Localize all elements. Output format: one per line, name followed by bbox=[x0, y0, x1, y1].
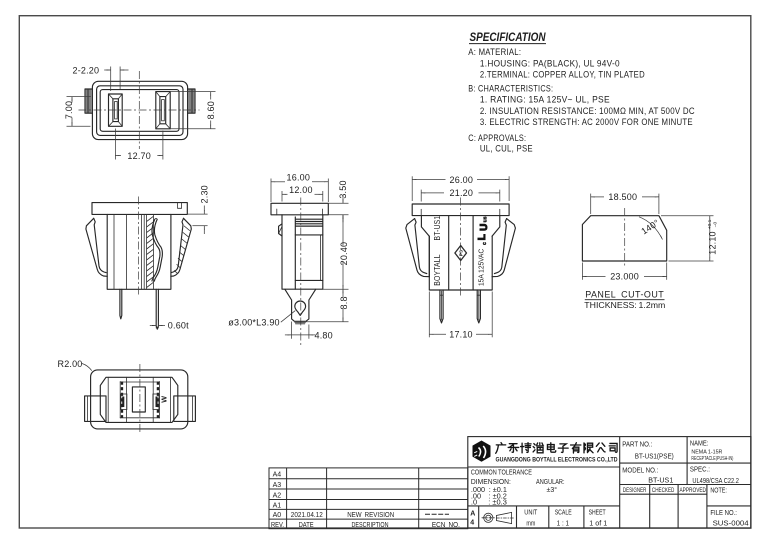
svg-text:UL498/CSA C22.2: UL498/CSA C22.2 bbox=[692, 478, 739, 485]
svg-text:+0.1: +0.1 bbox=[707, 219, 713, 229]
svg-text:DIMENSION:: DIMENSION: bbox=[471, 479, 511, 486]
svg-text:APPROVED: APPROVED bbox=[680, 487, 707, 494]
svg-text:C: APPROVALS:: C: APPROVALS: bbox=[468, 133, 526, 143]
svg-text:1 : 1: 1 : 1 bbox=[557, 520, 570, 527]
svg-text:BOYTALL: BOYTALL bbox=[433, 254, 442, 286]
svg-text:BT-US1: BT-US1 bbox=[433, 215, 442, 240]
svg-text:20.40: 20.40 bbox=[339, 242, 349, 266]
svg-text:mm: mm bbox=[526, 520, 535, 527]
svg-text:DESCRIPTION: DESCRIPTION bbox=[352, 522, 389, 529]
svg-text:A1: A1 bbox=[273, 502, 282, 509]
svg-text:12.70: 12.70 bbox=[127, 151, 151, 161]
svg-text:CHECKED: CHECKED bbox=[652, 487, 675, 494]
svg-text:A4: A4 bbox=[273, 472, 282, 479]
svg-text:PANEL CUT-OUT: PANEL CUT-OUT bbox=[585, 289, 664, 300]
svg-text:8.60: 8.60 bbox=[206, 101, 216, 119]
svg-text:PS: PS bbox=[459, 250, 464, 256]
svg-text:17.10: 17.10 bbox=[449, 330, 473, 340]
svg-text:4.80: 4.80 bbox=[315, 331, 333, 341]
svg-text:COMMON TOLERANCE: COMMON TOLERANCE bbox=[471, 469, 532, 476]
svg-text:DESIGNER: DESIGNER bbox=[623, 487, 647, 494]
svg-text:PART NO.:: PART NO.: bbox=[622, 442, 652, 449]
svg-text:2.30: 2.30 bbox=[200, 185, 210, 203]
svg-text:18.500: 18.500 bbox=[608, 192, 637, 202]
svg-text:BT-US1(PSE): BT-US1(PSE) bbox=[635, 452, 674, 461]
svg-text:A3: A3 bbox=[273, 482, 282, 489]
svg-text:2-2.20: 2-2.20 bbox=[73, 65, 100, 75]
svg-text:±3°: ±3° bbox=[547, 486, 558, 494]
svg-text:U: U bbox=[479, 224, 490, 231]
svg-text:4: 4 bbox=[470, 520, 474, 527]
svg-text:FILE NO.:: FILE NO.: bbox=[710, 510, 737, 517]
svg-text:2021.04.12: 2021.04.12 bbox=[291, 512, 323, 519]
svg-text:SUS-0004: SUS-0004 bbox=[713, 519, 749, 528]
svg-text:.0 : ±0.3: .0 : ±0.3 bbox=[471, 500, 507, 507]
svg-text:W: W bbox=[160, 396, 169, 403]
svg-text:12.10: 12.10 bbox=[708, 231, 718, 255]
svg-text:ECN NO.: ECN NO. bbox=[432, 522, 460, 529]
svg-text:3. ELECTRIC STRENGTH: AC 2000V: 3. ELECTRIC STRENGTH: AC 2000V FOR ONE M… bbox=[480, 117, 693, 127]
svg-text:NOTE:: NOTE: bbox=[710, 488, 727, 495]
svg-text:16.00: 16.00 bbox=[287, 173, 311, 183]
svg-text:A2: A2 bbox=[273, 493, 282, 500]
svg-text:GUANGDONG BOYTALL ELECTRONICS: GUANGDONG BOYTALL ELECTRONICS CO.,LTD bbox=[496, 457, 618, 464]
svg-text:A: MATERIAL:: A: MATERIAL: bbox=[468, 47, 521, 57]
svg-text:23.000: 23.000 bbox=[610, 272, 639, 282]
svg-text:7.00: 7.00 bbox=[64, 101, 74, 119]
svg-text:2. INSULATION RESISTANCE: 100M: 2. INSULATION RESISTANCE: 100MΩ MIN, AT … bbox=[480, 106, 695, 116]
svg-text:21.20: 21.20 bbox=[450, 188, 474, 198]
svg-text:THICKNESS: 1.2mm: THICKNESS: 1.2mm bbox=[584, 300, 665, 310]
svg-text:NEMA 1-15R: NEMA 1-15R bbox=[691, 450, 722, 456]
svg-text:RECEPTACLE(PUSH-IN): RECEPTACLE(PUSH-IN) bbox=[691, 456, 733, 462]
svg-text:UL, CUL, PSE: UL, CUL, PSE bbox=[480, 143, 533, 153]
svg-text:0.60t: 0.60t bbox=[168, 321, 189, 331]
svg-text:26.00: 26.00 bbox=[450, 175, 474, 185]
svg-text:SHEET: SHEET bbox=[589, 510, 607, 517]
svg-text:B: CHARACTERISTICS:: B: CHARACTERISTICS: bbox=[468, 84, 553, 94]
svg-text:1 of 1: 1 of 1 bbox=[589, 520, 607, 527]
svg-text:NAME:: NAME: bbox=[690, 441, 709, 448]
svg-text:ANGULAR:: ANGULAR: bbox=[536, 479, 565, 486]
svg-text:MODEL NO.:: MODEL NO.: bbox=[622, 467, 658, 474]
svg-text:12.00: 12.00 bbox=[289, 185, 313, 195]
svg-text:REV.: REV. bbox=[271, 522, 284, 529]
svg-text:UNIT: UNIT bbox=[524, 510, 538, 517]
svg-text:3.50: 3.50 bbox=[338, 180, 348, 198]
svg-text:15A 125VAC: 15A 125VAC bbox=[477, 248, 486, 286]
svg-text:A0: A0 bbox=[273, 512, 282, 519]
svg-text:us: us bbox=[482, 216, 488, 222]
svg-text:2.TERMINAL: COPPER ALLOY, TIN: 2.TERMINAL: COPPER ALLOY, TIN PLATED bbox=[480, 70, 645, 80]
svg-text:SPEC.:: SPEC.: bbox=[690, 467, 710, 474]
svg-text:R2.00: R2.00 bbox=[58, 359, 83, 369]
svg-text:c: c bbox=[482, 242, 488, 245]
svg-text:ø3.00*L3.90: ø3.00*L3.90 bbox=[228, 317, 279, 327]
svg-text:SCALE: SCALE bbox=[555, 510, 572, 517]
svg-text:–0: –0 bbox=[713, 222, 719, 228]
svg-text:DATE: DATE bbox=[299, 522, 314, 529]
svg-text:8.8: 8.8 bbox=[339, 296, 349, 309]
svg-text:BT-US1: BT-US1 bbox=[648, 476, 673, 485]
svg-text:L: L bbox=[477, 234, 488, 240]
svg-text:1.HOUSING: PA(BLACK), UL 94V-0: 1.HOUSING: PA(BLACK), UL 94V-0 bbox=[480, 59, 620, 69]
svg-text:NEW REVISION: NEW REVISION bbox=[347, 512, 394, 519]
svg-text:SPECIFICATION: SPECIFICATION bbox=[470, 32, 547, 44]
svg-text:1. RATING: 15A 125V~ UL, PSE: 1. RATING: 15A 125V~ UL, PSE bbox=[480, 94, 610, 104]
svg-text:A: A bbox=[470, 510, 475, 517]
